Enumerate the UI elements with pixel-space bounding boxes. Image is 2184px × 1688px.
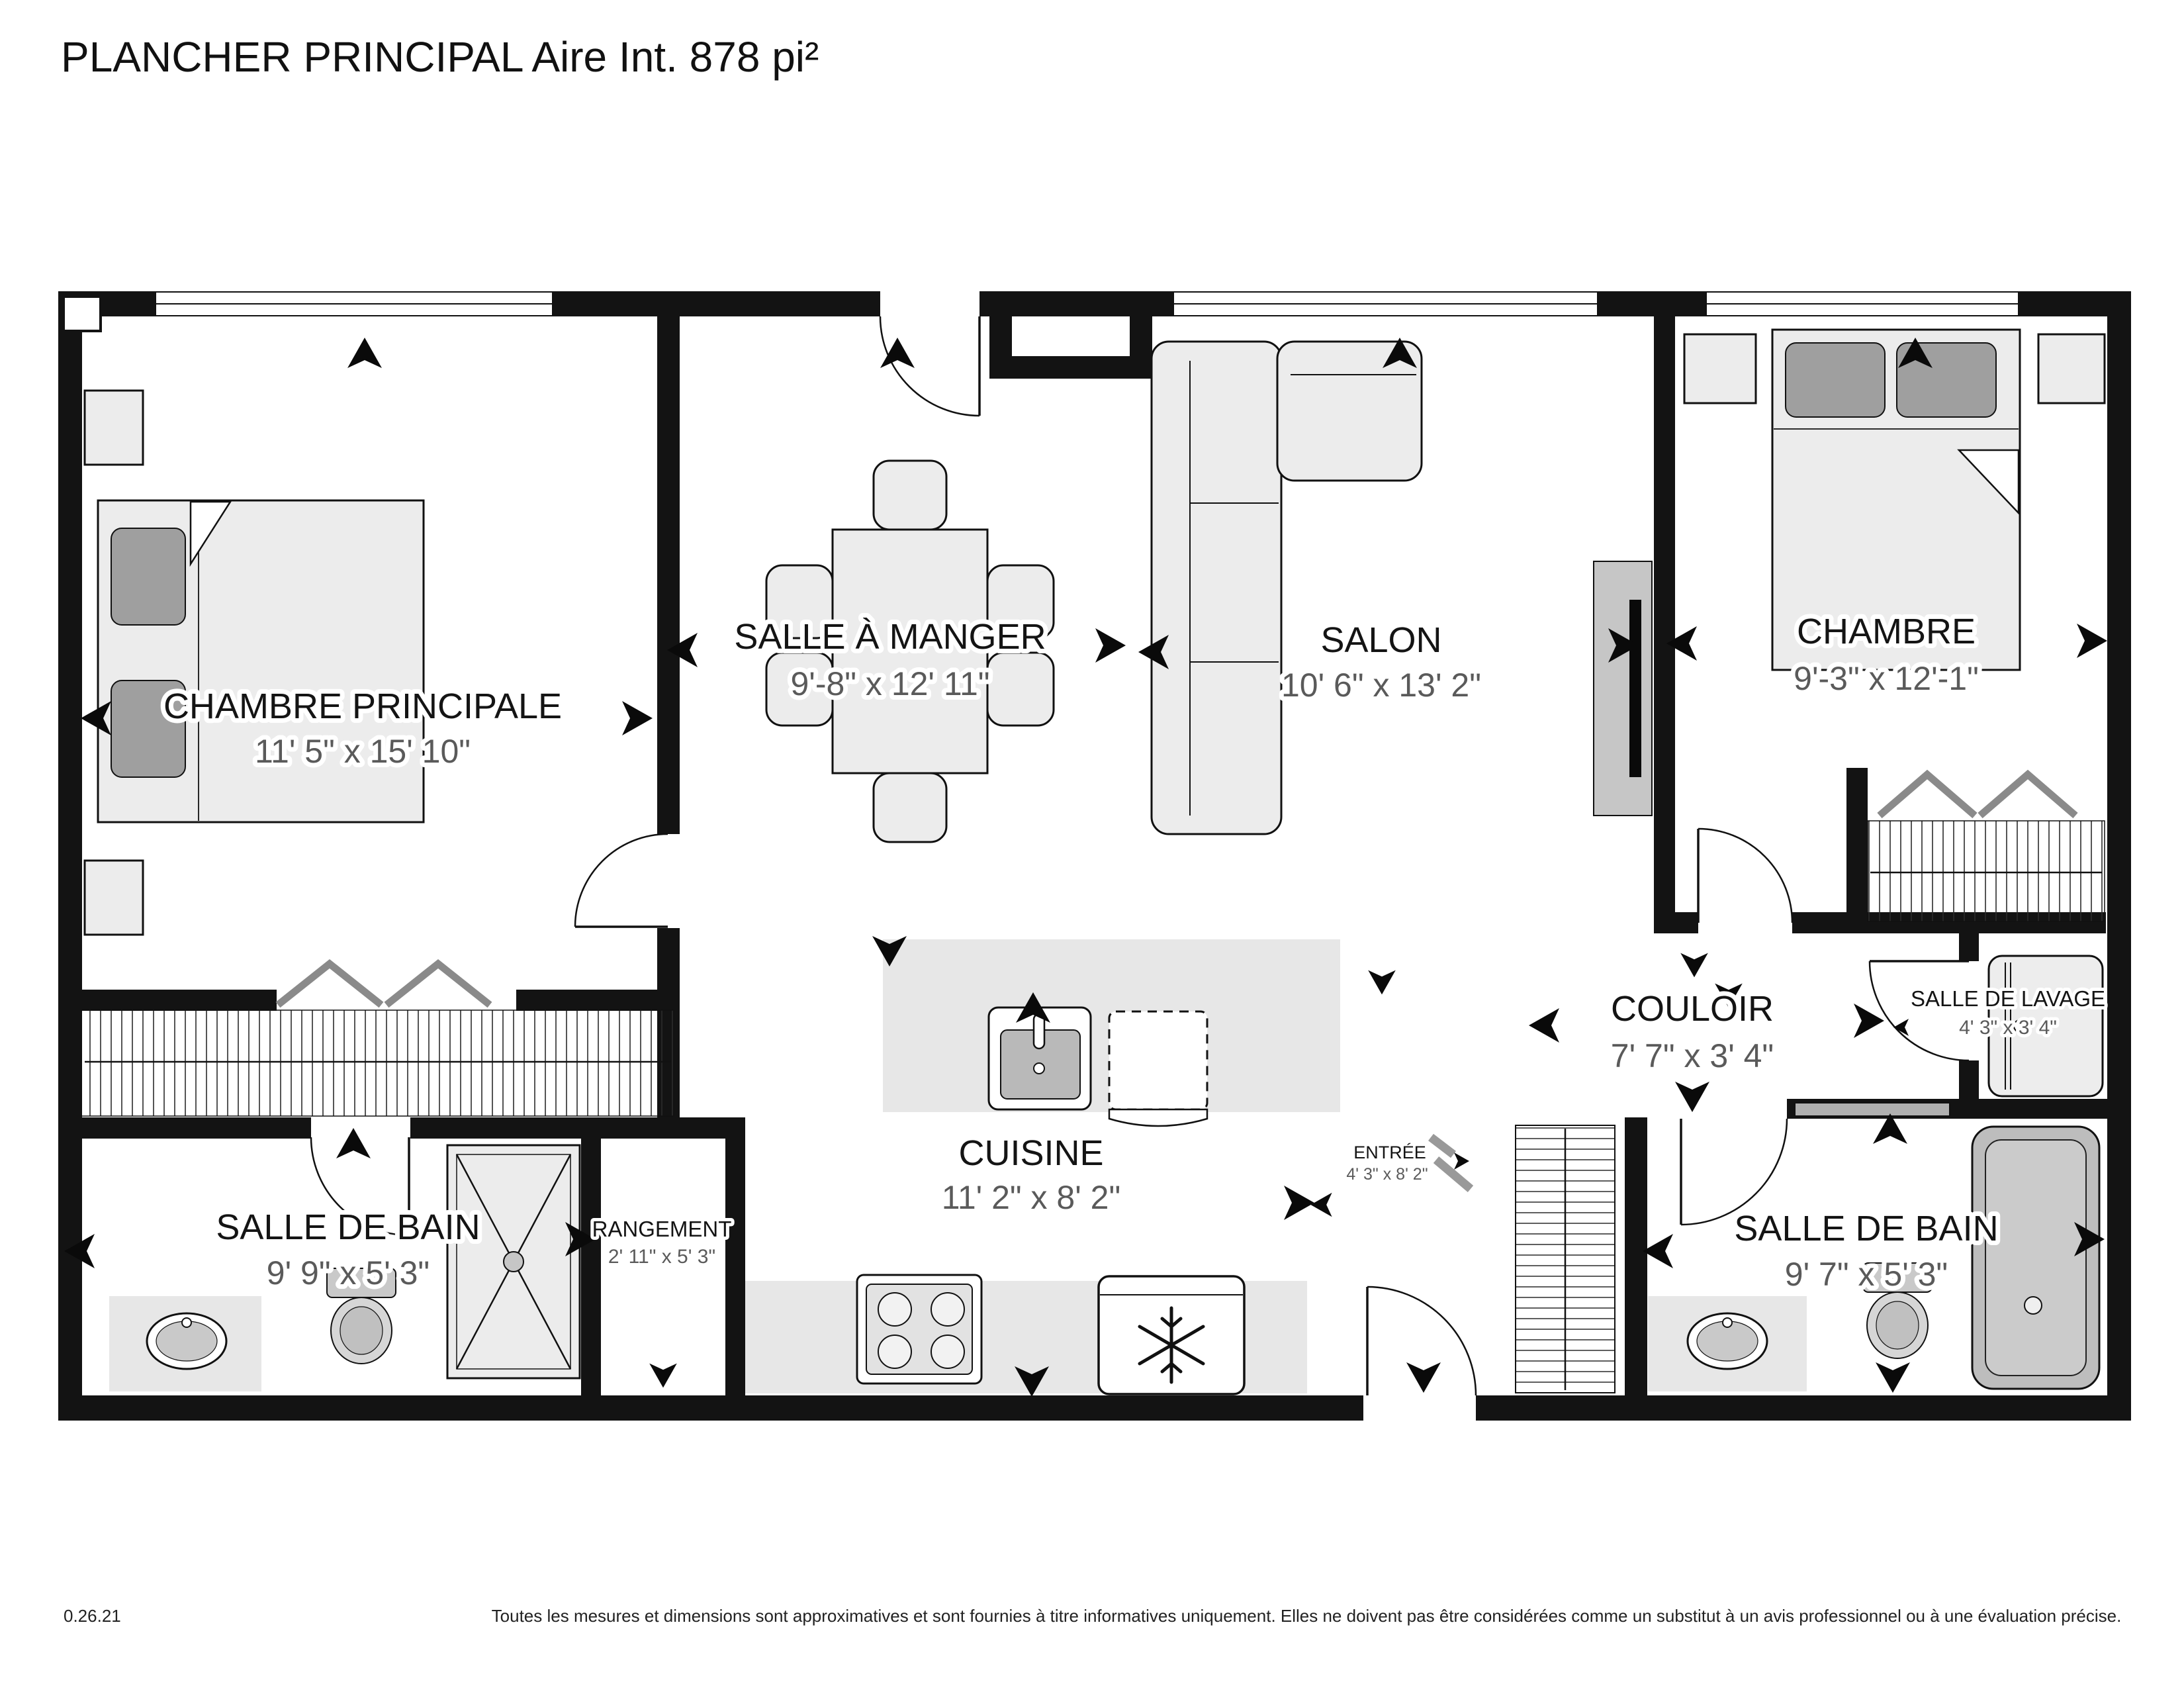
tv-screen [1629, 600, 1641, 777]
version-label: 0.26.21 [64, 1606, 121, 1626]
room-dimensions: 10' 6" x 13' 2" [1281, 667, 1481, 704]
room-name: ENTRÉE [1353, 1143, 1426, 1162]
burner-icon [931, 1293, 964, 1326]
room-dimensions: 9' 9" x 5' 3" [267, 1254, 430, 1291]
dining-chair [874, 461, 946, 530]
dining-chair [987, 653, 1054, 726]
fridge-icon [1099, 1276, 1244, 1394]
pocket-door-slab [1795, 1103, 1950, 1116]
dining-chair [874, 773, 946, 842]
sink-icon [147, 1313, 226, 1369]
room-dimensions: 4' 3" x 8' 2" [1346, 1165, 1428, 1184]
measure-arrow-icon [1095, 628, 1126, 663]
page-title: PLANCHER PRINCIPAL Aire Int. 878 pi² [61, 33, 819, 81]
room-name: CHAMBRE [1797, 612, 1976, 651]
burner-icon [878, 1293, 911, 1326]
room-name: CUISINE [958, 1133, 1103, 1173]
bifold-chevron-icon [387, 964, 490, 1005]
measure-arrow-icon [1675, 1082, 1709, 1112]
burner-icon [931, 1335, 964, 1368]
sink-icon [1688, 1313, 1767, 1369]
door-stub [1954, 1099, 1971, 1119]
room-dimensions: 11' 5" x 15' 10" [255, 733, 471, 770]
door-chambre [1698, 829, 1792, 923]
room-label-entree: ENTRÉE 4' 3" x 8' 2" [1346, 1143, 1428, 1184]
measure-arrow-icon [1529, 1008, 1559, 1043]
pillow-icon [1786, 343, 1885, 417]
shower-icon [447, 1145, 580, 1378]
room-label-rangement: RANGEMENT 2' 11" x 5' 3" [592, 1217, 732, 1268]
door-master [575, 834, 668, 927]
island-sink [989, 1008, 1091, 1109]
window-chambre [1706, 292, 2019, 316]
bifold-chevron-icon [1880, 774, 1975, 816]
measure-arrow-icon [2077, 624, 2107, 658]
measure-arrow-icon [622, 701, 653, 735]
measure-arrow-icon [880, 338, 915, 368]
room-name: CHAMBRE PRINCIPALE [163, 686, 562, 726]
window-salon [1173, 292, 1598, 316]
stove-icon [857, 1275, 981, 1383]
room-dimensions: 9'-8" x 12' 11" [790, 665, 989, 702]
room-label-salle-de-bain-gauche: SALLE DE BAIN 9' 9" x 5' 3" [216, 1207, 480, 1291]
nightstand [85, 391, 143, 465]
room-label-cuisine: CUISINE 11' 2" x 8' 2" [942, 1133, 1120, 1216]
nightstand [1684, 334, 1756, 403]
sofa [1152, 342, 1422, 834]
faucet-icon [1034, 1014, 1044, 1049]
room-label-salle-de-bain-droite: SALLE DE BAIN 9' 7" x 5' 3" [1734, 1209, 1998, 1293]
corner-notch [64, 297, 101, 331]
bifold-door-leaf [1436, 1160, 1471, 1189]
bifold-chevron-icon [1980, 774, 2075, 816]
room-dimensions: 11' 2" x 8' 2" [942, 1179, 1120, 1216]
door-lavage [1870, 961, 1969, 1060]
measure-arrow-icon [1854, 1004, 1884, 1038]
room-name: SALLE À MANGER [734, 617, 1046, 657]
measure-arrow-icon [1454, 1152, 1469, 1170]
room-label-couloir: COULOIR 7' 7" x 3' 4" [1611, 989, 1774, 1074]
bed-master [98, 500, 424, 822]
closet-chambre [1868, 774, 2105, 921]
nightstand [2038, 334, 2105, 403]
room-name: SALLE DE BAIN [216, 1207, 480, 1247]
measure-arrow-icon [1368, 970, 1396, 995]
dishwasher-icon [1109, 1011, 1207, 1126]
room-name: SALON [1320, 620, 1441, 660]
room-name: COULOIR [1611, 989, 1774, 1029]
disclaimer-text: Toutes les mesures et dimensions sont ap… [492, 1606, 2122, 1626]
room-name: RANGEMENT [592, 1217, 732, 1241]
door-balcony [880, 316, 979, 416]
measure-arrow-icon [347, 338, 382, 368]
bathtub-icon [1972, 1127, 2099, 1389]
measure-arrow-icon [1284, 1186, 1314, 1220]
window-master [156, 292, 553, 316]
measure-arrow-icon [1310, 1193, 1332, 1217]
measure-arrow-icon [336, 1128, 371, 1158]
room-dimensions: 9' 7" x 5' 3" [1785, 1256, 1948, 1293]
closet-entree [1516, 1125, 1615, 1393]
pillow-icon [111, 528, 185, 625]
nightstand [85, 861, 143, 935]
floor-plan-canvas: PLANCHER PRINCIPAL Aire Int. 878 pi² [0, 0, 2184, 1688]
room-dimensions: 4' 3" x 3' 4" [1959, 1017, 2057, 1039]
room-dimensions: 9'-3" x 12'-1" [1794, 660, 1979, 697]
bifold-chevron-icon [278, 964, 381, 1005]
room-label-salon: SALON 10' 6" x 13' 2" [1281, 620, 1481, 704]
measure-arrow-icon [1680, 953, 1708, 978]
measure-arrow-icon [1876, 1362, 1910, 1393]
bifold-door-leaf [1431, 1137, 1453, 1154]
room-dimensions: 7' 7" x 3' 4" [1611, 1037, 1774, 1074]
tv-unit [1594, 561, 1652, 816]
room-name: SALLE DE LAVAGE [1911, 986, 2105, 1011]
room-dimensions: 2' 11" x 5' 3" [608, 1246, 715, 1268]
closet-master [81, 964, 674, 1116]
burner-icon [878, 1335, 911, 1368]
room-name: SALLE DE BAIN [1734, 1209, 1998, 1248]
measure-arrow-icon [649, 1364, 677, 1388]
measure-arrow-icon [1406, 1362, 1441, 1393]
